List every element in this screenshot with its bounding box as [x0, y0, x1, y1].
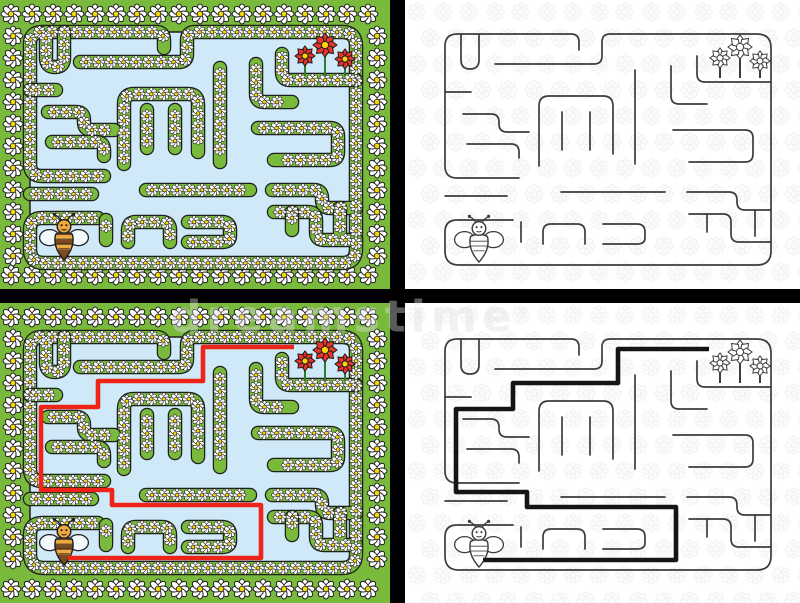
daisy-flower-icon	[80, 493, 93, 506]
daisy-flower-icon	[39, 257, 52, 270]
daisy-flower-icon	[707, 185, 726, 204]
daisy-flower-icon	[512, 358, 531, 377]
daisy-flower-icon	[327, 234, 340, 247]
daisy-flower-icon	[367, 439, 387, 459]
daisy-flower-icon	[306, 74, 319, 87]
daisy-flower-icon	[772, 3, 791, 22]
daisy-flower-icon	[22, 579, 42, 599]
daisy-flower-icon	[367, 158, 387, 178]
daisy-flower-icon	[616, 3, 635, 22]
daisy-flower-icon	[43, 579, 63, 599]
daisy-flower-icon	[214, 68, 227, 81]
daisy-flower-icon	[512, 306, 531, 325]
daisy-flower-icon	[281, 26, 294, 39]
daisy-flower-icon	[189, 562, 202, 575]
daisy-flower-icon	[349, 342, 362, 355]
daisy-flower-icon	[188, 521, 201, 534]
daisy-flower-icon	[473, 384, 492, 403]
daisy-flower-icon	[655, 540, 674, 559]
daisy-flower-icon	[24, 46, 37, 59]
daisy-flower-icon	[350, 442, 363, 455]
daisy-flower-icon	[720, 462, 739, 481]
daisy-flower-icon	[314, 257, 327, 270]
daisy-flower-icon	[642, 358, 661, 377]
daisy-flower-icon	[759, 237, 778, 256]
daisy-flower-icon	[603, 237, 622, 256]
daisy-flower-icon	[232, 4, 252, 24]
daisy-flower-icon	[746, 566, 765, 585]
daisy-flower-icon	[668, 159, 687, 178]
daisy-flower-icon	[590, 306, 609, 325]
daisy-flower-icon	[332, 443, 345, 456]
daisy-flower-icon	[642, 410, 661, 429]
daisy-flower-icon	[30, 493, 43, 506]
daisy-flower-icon	[408, 55, 427, 74]
daisy-flower-icon	[181, 346, 194, 359]
daisy-flower-icon	[250, 76, 263, 89]
daisy-flower-icon	[64, 307, 84, 327]
daisy-flower-icon	[214, 435, 227, 448]
daisy-flower-icon	[85, 212, 98, 225]
daisy-flower-icon	[192, 132, 205, 145]
daisy-flower-icon	[603, 133, 622, 152]
daisy-flower-icon	[316, 4, 336, 24]
daisy-flower-icon	[668, 410, 687, 429]
daisy-flower-icon	[182, 29, 195, 42]
daisy-flower-icon	[158, 184, 171, 197]
daisy-flower-icon	[169, 440, 182, 453]
daisy-flower-icon	[233, 489, 246, 502]
daisy-flower-icon	[58, 343, 71, 356]
daisy-flower-icon	[199, 236, 212, 249]
daisy-flower-icon	[358, 579, 378, 599]
daisy-flower-icon	[538, 566, 557, 585]
daisy-flower-icon	[281, 331, 294, 344]
daisy-flower-icon	[668, 462, 687, 481]
daisy-flower-icon	[101, 562, 114, 575]
daisy-flower-icon	[118, 102, 131, 115]
daisy-flower-icon	[408, 3, 427, 22]
daisy-flower-icon	[24, 401, 37, 414]
daisy-flower-icon	[201, 562, 214, 575]
daisy-flower-icon	[284, 184, 297, 197]
daisy-flower-icon	[408, 263, 427, 282]
daisy-flower-icon	[330, 455, 343, 468]
daisy-flower-icon	[58, 38, 71, 51]
daisy-flower-icon	[499, 133, 518, 152]
daisy-flower-icon	[85, 517, 98, 530]
daisy-flower-icon	[629, 436, 648, 455]
daisy-flower-icon	[92, 361, 105, 374]
daisy-flower-icon	[331, 431, 344, 444]
daisy-flower-icon	[655, 133, 674, 152]
daisy-flower-icon	[43, 4, 63, 24]
daisy-flower-icon	[295, 122, 308, 135]
daisy-flower-icon	[60, 106, 73, 119]
daisy-flower-icon	[64, 579, 84, 599]
daisy-flower-icon	[460, 107, 479, 126]
daisy-flower-icon	[270, 122, 283, 135]
daisy-flower-icon	[232, 307, 252, 327]
daisy-flower-icon	[350, 174, 363, 187]
daisy-flower-icon	[167, 361, 180, 374]
daisy-flower-icon	[733, 436, 752, 455]
daisy-flower-icon	[118, 457, 131, 470]
daisy-flower-icon	[114, 562, 127, 575]
daisy-flower-icon	[171, 489, 184, 502]
daisy-flower-icon	[339, 256, 352, 269]
daisy-flower-icon	[100, 525, 113, 538]
daisy-flower-icon	[294, 459, 307, 472]
daisy-flower-icon	[473, 133, 492, 152]
daisy-flower-icon	[681, 81, 700, 100]
daisy-flower-icon	[258, 96, 271, 109]
daisy-flower-icon	[196, 184, 209, 197]
daisy-flower-icon	[590, 462, 609, 481]
daisy-flower-icon	[83, 26, 96, 39]
daisy-flower-icon	[158, 489, 171, 502]
daisy-flower-icon	[133, 331, 146, 344]
daisy-flower-icon	[434, 211, 453, 230]
daisy-flower-icon	[319, 154, 332, 167]
daisy-flower-icon	[447, 81, 466, 100]
daisy-flower-icon	[314, 562, 327, 575]
daisy-flower-icon	[538, 358, 557, 377]
maze-panel-outline	[405, 0, 800, 289]
daisy-flower-icon	[42, 389, 55, 402]
daisy-flower-icon	[27, 253, 40, 266]
daisy-flower-icon	[681, 384, 700, 403]
daisy-flower-icon	[30, 188, 43, 201]
daisy-flower-icon	[785, 488, 800, 507]
daisy-flower-icon	[358, 4, 378, 24]
daisy-flower-icon	[3, 70, 23, 90]
daisy-flower-icon	[694, 410, 713, 429]
daisy-flower-icon	[199, 541, 212, 554]
daisy-flower-icon	[1, 4, 21, 24]
daisy-flower-icon	[276, 51, 289, 64]
daisy-flower-icon	[421, 332, 440, 351]
daisy-flower-icon	[707, 540, 726, 559]
daisy-flower-icon	[3, 202, 23, 222]
daisy-flower-icon	[58, 331, 71, 344]
daisy-flower-icon	[181, 41, 194, 54]
daisy-flower-icon	[332, 138, 345, 151]
daisy-flower-icon	[183, 489, 196, 502]
daisy-flower-icon	[616, 306, 635, 325]
daisy-flower-icon	[40, 349, 53, 362]
daisy-flower-icon	[499, 81, 518, 100]
daisy-flower-icon	[122, 535, 135, 548]
daisy-flower-icon	[24, 133, 37, 146]
daisy-flower-icon	[408, 306, 427, 325]
daisy-flower-icon	[655, 237, 674, 256]
daisy-flower-icon	[24, 363, 37, 376]
daisy-flower-icon	[40, 44, 53, 57]
daisy-flower-icon	[55, 493, 68, 506]
daisy-flower-icon	[214, 385, 227, 398]
daisy-flower-icon	[276, 356, 289, 369]
daisy-flower-icon	[258, 427, 271, 440]
daisy-flower-icon	[169, 427, 182, 440]
daisy-flower-icon	[590, 107, 609, 126]
daisy-flower-icon	[486, 514, 505, 533]
daisy-flower-icon	[176, 562, 189, 575]
daisy-flower-icon	[3, 351, 23, 371]
daisy-flower-icon	[226, 562, 239, 575]
daisy-flower-icon	[283, 122, 296, 135]
daisy-flower-icon	[759, 133, 778, 152]
daisy-flower-icon	[616, 566, 635, 585]
daisy-flower-icon	[331, 74, 344, 87]
daisy-flower-icon	[264, 257, 277, 270]
daisy-flower-icon	[108, 26, 121, 39]
daisy-flower-icon	[1, 579, 21, 599]
daisy-flower-icon	[616, 55, 635, 74]
daisy-flower-icon	[460, 462, 479, 481]
daisy-flower-icon	[167, 56, 180, 69]
daisy-flower-icon	[85, 579, 105, 599]
daisy-flower-icon	[250, 381, 263, 394]
daisy-flower-icon	[512, 462, 531, 481]
daisy-flower-icon	[214, 93, 227, 106]
daisy-flower-icon	[35, 212, 48, 225]
daisy-flower-icon	[186, 541, 199, 554]
daisy-flower-icon	[3, 549, 23, 569]
daisy-flower-icon	[67, 170, 80, 183]
daisy-flower-icon	[118, 444, 131, 457]
daisy-flower-icon	[132, 88, 145, 101]
daisy-flower-icon	[551, 133, 570, 152]
daisy-flower-icon	[350, 404, 363, 417]
daisy-flower-icon	[133, 26, 146, 39]
daisy-flower-icon	[118, 432, 131, 445]
daisy-flower-icon	[681, 237, 700, 256]
daisy-flower-icon	[96, 331, 109, 344]
daisy-flower-icon	[538, 211, 557, 230]
daisy-flower-icon	[408, 566, 427, 585]
daisy-flower-icon	[616, 462, 635, 481]
daisy-flower-icon	[132, 393, 145, 406]
daisy-flower-icon	[486, 306, 505, 325]
daisy-flower-icon	[642, 514, 661, 533]
daisy-flower-icon	[301, 257, 314, 270]
daisy-flower-icon	[720, 306, 739, 325]
daisy-flower-icon	[434, 107, 453, 126]
daisy-flower-icon	[89, 257, 102, 270]
daisy-flower-icon	[188, 216, 201, 229]
daisy-flower-icon	[223, 220, 236, 233]
daisy-flower-icon	[681, 436, 700, 455]
daisy-flower-icon	[169, 135, 182, 148]
daisy-flower-icon	[746, 3, 765, 22]
daisy-flower-icon	[434, 358, 453, 377]
daisy-flower-icon	[655, 436, 674, 455]
daisy-flower-icon	[577, 384, 596, 403]
daisy-flower-icon	[350, 137, 363, 150]
daisy-flower-icon	[447, 384, 466, 403]
daisy-flower-icon	[67, 188, 80, 201]
daisy-flower-icon	[3, 329, 23, 349]
daisy-flower-icon	[720, 514, 739, 533]
daisy-flower-icon	[282, 459, 295, 472]
daisy-flower-icon	[191, 95, 204, 108]
daisy-flower-icon	[473, 29, 492, 48]
daisy-flower-icon	[319, 459, 332, 472]
daisy-flower-icon	[293, 26, 306, 39]
daisy-flower-icon	[642, 566, 661, 585]
maze	[24, 26, 363, 270]
daisy-flower-icon	[35, 517, 48, 530]
daisy-flower-icon	[169, 110, 182, 123]
daisy-flower-icon	[148, 579, 168, 599]
daisy-flower-icon	[22, 307, 42, 327]
daisy-flower-icon	[367, 505, 387, 525]
daisy-flower-icon	[339, 561, 352, 574]
daisy-flower-icon	[155, 361, 168, 374]
daisy-flower-icon	[289, 562, 302, 575]
daisy-flower-icon	[603, 384, 622, 403]
daisy-flower-icon	[43, 307, 63, 327]
daisy-flower-icon	[268, 331, 281, 344]
daisy-flower-icon	[186, 236, 199, 249]
daisy-flower-icon	[629, 81, 648, 100]
daisy-flower-icon	[214, 373, 227, 386]
daisy-flower-icon	[337, 4, 357, 24]
daisy-flower-icon	[160, 522, 173, 535]
daisy-flower-icon	[250, 64, 263, 77]
daisy-flower-icon	[200, 521, 213, 534]
daisy-flower-icon	[331, 126, 344, 139]
daisy-flower-icon	[308, 122, 321, 135]
daisy-flower-icon	[350, 467, 363, 480]
daisy-flower-icon	[146, 184, 159, 197]
daisy-flower-icon	[785, 29, 800, 48]
daisy-flower-icon	[759, 332, 778, 351]
daisy-flower-icon	[157, 29, 170, 42]
daisy-flower-icon	[322, 506, 335, 519]
daisy-flower-icon	[201, 257, 214, 270]
daisy-flower-icon	[629, 29, 648, 48]
daisy-flower-icon	[218, 331, 231, 344]
daisy-flower-icon	[642, 159, 661, 178]
daisy-flower-icon	[3, 136, 23, 156]
daisy-flower-icon	[486, 358, 505, 377]
daisy-flower-icon	[655, 29, 674, 48]
daisy-flower-icon	[80, 361, 93, 374]
daisy-flower-icon	[421, 81, 440, 100]
daisy-flower-icon	[231, 331, 244, 344]
daisy-flower-icon	[271, 96, 284, 109]
daisy-flower-icon	[42, 475, 55, 488]
daisy-flower-icon	[211, 579, 231, 599]
daisy-flower-icon	[720, 566, 739, 585]
daisy-flower-icon	[239, 257, 252, 270]
daisy-flower-icon	[105, 361, 118, 374]
daisy-flower-icon	[146, 26, 159, 39]
daisy-flower-icon	[141, 122, 154, 135]
daisy-flower-icon	[274, 206, 287, 219]
daisy-flower-icon	[120, 90, 133, 103]
daisy-flower-icon	[3, 48, 23, 68]
daisy-flower-icon	[274, 307, 294, 327]
daisy-flower-icon	[64, 4, 84, 24]
daisy-flower-icon	[80, 56, 93, 69]
daisy-flower-icon	[164, 228, 177, 241]
daisy-flower-icon	[434, 306, 453, 325]
daisy-flower-icon	[48, 411, 61, 424]
daisy-flower-icon	[350, 479, 363, 492]
daisy-flower-icon	[118, 152, 131, 165]
daisy-flower-icon	[24, 229, 37, 242]
daisy-flower-icon	[343, 27, 356, 40]
daisy-flower-icon	[98, 124, 111, 137]
daisy-flower-icon	[772, 211, 791, 230]
daisy-flower-icon	[350, 87, 363, 100]
daisy-flower-icon	[98, 143, 111, 156]
daisy-flower-icon	[272, 184, 285, 197]
daisy-flower-icon	[350, 492, 363, 505]
daisy-flower-icon	[421, 436, 440, 455]
daisy-flower-icon	[447, 133, 466, 152]
daisy-flower-icon	[421, 540, 440, 559]
daisy-flower-icon	[460, 159, 479, 178]
daisy-flower-icon	[577, 237, 596, 256]
daisy-flower-icon	[67, 475, 80, 488]
daisy-flower-icon	[120, 395, 133, 408]
daisy-flower-icon	[136, 521, 149, 534]
daisy-flower-icon	[124, 218, 137, 231]
daisy-flower-icon	[130, 361, 143, 374]
daisy-flower-icon	[221, 489, 234, 502]
daisy-flower-icon	[126, 257, 139, 270]
daisy-flower-icon	[208, 184, 221, 197]
daisy-flower-icon	[24, 413, 37, 426]
daisy-flower-icon	[720, 410, 739, 429]
daisy-flower-icon	[164, 533, 177, 546]
daisy-flower-icon	[295, 4, 315, 24]
daisy-flower-icon	[772, 358, 791, 377]
daisy-flower-icon	[785, 332, 800, 351]
daisy-flower-icon	[42, 84, 55, 97]
daisy-flower-icon	[24, 351, 37, 364]
daisy-flower-icon	[96, 26, 109, 39]
daisy-flower-icon	[309, 515, 322, 528]
daisy-flower-icon	[148, 307, 168, 327]
daisy-flower-icon	[473, 436, 492, 455]
daisy-flower-icon	[350, 187, 363, 200]
daisy-flower-icon	[367, 329, 387, 349]
daisy-flower-icon	[512, 159, 531, 178]
daisy-flower-icon	[3, 527, 23, 547]
daisy-flower-icon	[58, 356, 71, 369]
daisy-flower-icon	[629, 185, 648, 204]
daisy-flower-icon	[146, 331, 159, 344]
daisy-flower-icon	[772, 566, 791, 585]
daisy-flower-icon	[694, 514, 713, 533]
daisy-flower-icon	[772, 107, 791, 126]
daisy-flower-icon	[564, 358, 583, 377]
daisy-flower-icon	[350, 517, 363, 530]
daisy-flower-icon	[76, 257, 89, 270]
daisy-flower-icon	[564, 306, 583, 325]
daisy-flower-icon	[316, 579, 336, 599]
daisy-flower-icon	[142, 361, 155, 374]
daisy-flower-icon	[192, 412, 205, 425]
daisy-flower-icon	[460, 3, 479, 22]
daisy-flower-icon	[52, 441, 65, 454]
daisy-flower-icon	[525, 332, 544, 351]
